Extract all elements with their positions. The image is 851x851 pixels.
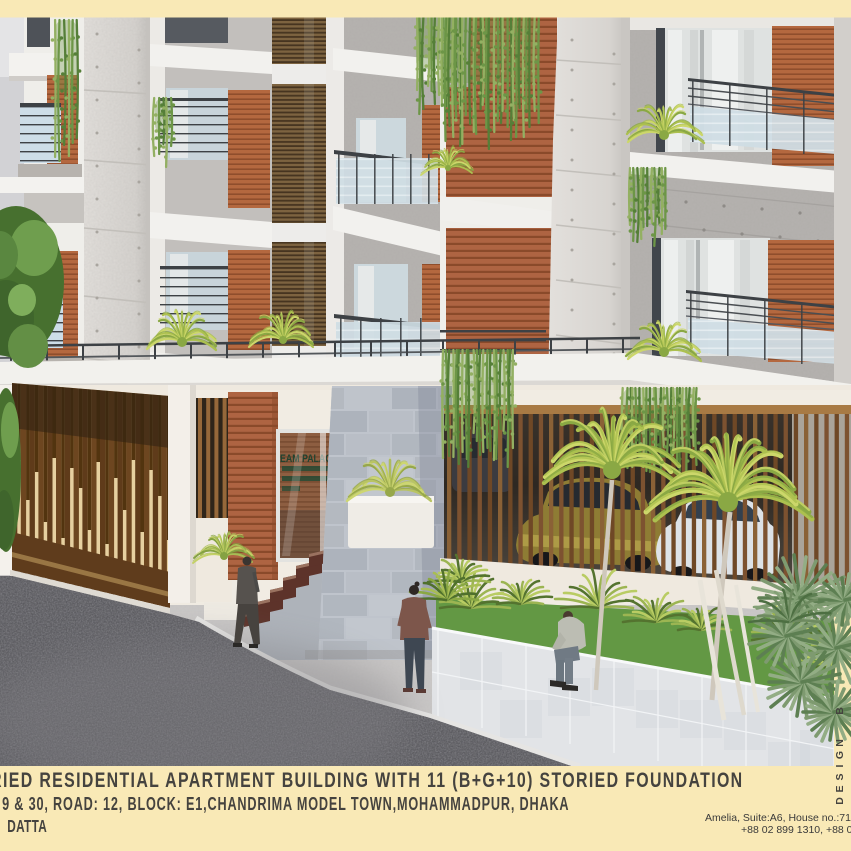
svg-text:G: G: [834, 751, 846, 759]
svg-text:D: D: [834, 797, 846, 805]
svg-text:RIED RESIDENTIAL APARTMENT BUI: RIED RESIDENTIAL APARTMENT BUILDING WITH…: [0, 768, 744, 792]
svg-text:E: E: [834, 785, 846, 792]
svg-text:S: S: [834, 773, 846, 780]
svg-text:+88 02 899 1310, +88 02 899: +88 02 899 1310, +88 02 899: [741, 824, 851, 836]
svg-text:B: B: [834, 707, 846, 715]
svg-text:N: N: [834, 739, 846, 747]
svg-text:DATTA: DATTA: [7, 817, 47, 837]
svg-text:Amelia, Suite:A6, House no.:71: Amelia, Suite:A6, House no.:71, Road: [705, 812, 851, 824]
svg-text:I: I: [834, 764, 846, 767]
svg-text:9 & 30, ROAD: 12, BLOCK: E1,CH: 9 & 30, ROAD: 12, BLOCK: E1,CHANDRIMA MO…: [2, 795, 569, 815]
